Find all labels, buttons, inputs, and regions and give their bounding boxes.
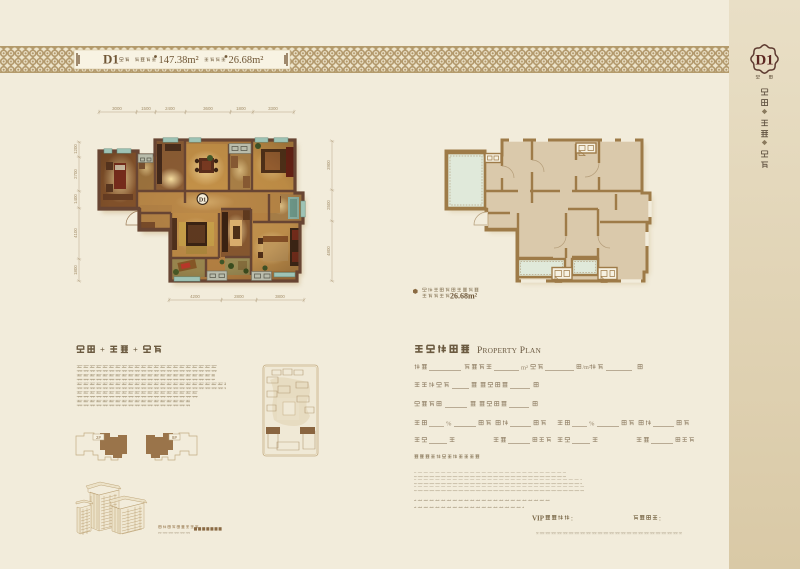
svg-text:1500: 1500 [141, 106, 151, 111]
svg-text:1800: 1800 [73, 265, 78, 275]
svg-text:m²: m² [521, 365, 528, 372]
svg-text:1400: 1400 [73, 194, 78, 204]
svg-text:3600: 3600 [203, 106, 213, 111]
svg-text:VIP: VIP [532, 515, 545, 523]
svg-text:+: + [133, 344, 138, 354]
svg-text:8#: 8# [172, 435, 177, 440]
svg-text:4100: 4100 [73, 228, 78, 238]
svg-text:PROPERTY PLAN: PROPERTY PLAN [477, 346, 541, 356]
svg-text:/m²: /m² [583, 365, 591, 371]
svg-text:26.68m²: 26.68m² [450, 291, 478, 300]
svg-text:3900: 3900 [326, 160, 331, 170]
svg-text:+: + [100, 344, 105, 354]
svg-text:%: % [589, 421, 595, 428]
svg-text:3300: 3300 [268, 106, 278, 111]
svg-text:%: % [446, 421, 452, 428]
svg-text::: : [659, 516, 661, 523]
svg-text:2800: 2800 [234, 294, 244, 299]
svg-text:2#: 2# [96, 435, 101, 440]
svg-text:3800: 3800 [275, 294, 285, 299]
svg-text:2700: 2700 [73, 169, 78, 179]
svg-text:1200: 1200 [73, 144, 78, 154]
svg-text:26.68m²: 26.68m² [229, 55, 264, 66]
svg-text:D1: D1 [199, 197, 206, 203]
svg-text::: : [571, 516, 573, 523]
svg-text:3000: 3000 [112, 106, 122, 111]
svg-text:147.38m²: 147.38m² [159, 55, 199, 66]
svg-text:D1: D1 [755, 53, 773, 69]
svg-text:2500: 2500 [326, 200, 331, 210]
svg-text:4200: 4200 [190, 294, 200, 299]
svg-text:4800: 4800 [326, 246, 331, 256]
svg-text:2400: 2400 [165, 106, 175, 111]
svg-text:1800: 1800 [236, 106, 246, 111]
svg-text:D1: D1 [103, 52, 119, 67]
